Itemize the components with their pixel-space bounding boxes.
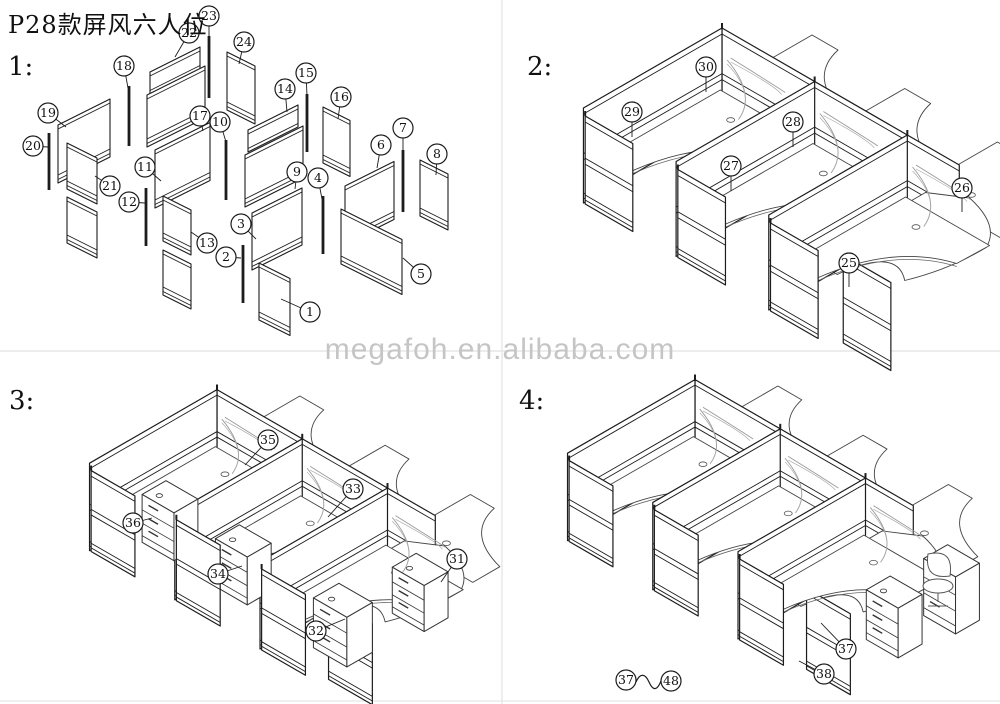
callout-16: 16	[331, 87, 351, 107]
section-3-label: 3:	[9, 386, 34, 416]
callout-number: 19	[40, 105, 56, 120]
callout-number: 32	[308, 623, 324, 638]
callout-number: 14	[277, 81, 293, 96]
callout-number: 1	[306, 304, 314, 319]
callout-35: 35	[258, 430, 278, 450]
callout-number: 13	[199, 235, 215, 250]
catalog-diagram-page: 1234567891011121314151617181920212223242…	[0, 0, 1000, 704]
callout-17: 17	[190, 106, 210, 126]
callout-number: 38	[816, 666, 832, 681]
callout-27: 27	[721, 156, 741, 176]
callout-28: 28	[783, 112, 803, 132]
callout-2: 2	[216, 247, 236, 267]
callout-number: 17	[192, 108, 208, 123]
chair-seat	[923, 579, 953, 593]
callout-3: 3	[231, 214, 251, 234]
callout-13: 13	[197, 233, 217, 253]
page-title: P28款屏风六人位	[8, 5, 208, 40]
callout-number: 25	[841, 255, 857, 270]
callout-31: 31	[447, 549, 467, 569]
callout-number: 30	[698, 59, 714, 74]
callout-number: 31	[449, 551, 465, 566]
callout-10: 10	[210, 112, 230, 132]
screen-panel	[67, 197, 97, 258]
section-3-figure: 313233343536	[90, 385, 500, 704]
callout-number: 16	[333, 89, 349, 104]
legend-number: 48	[663, 673, 679, 688]
callout-12: 12	[119, 192, 139, 212]
screen-panel	[163, 196, 191, 255]
callout-number: 6	[377, 137, 385, 152]
callout-1: 1	[300, 302, 320, 322]
callout-number: 24	[236, 34, 252, 49]
callout-25: 25	[839, 253, 859, 273]
callout-number: 27	[723, 158, 739, 173]
callout-20: 20	[23, 136, 43, 156]
section-1-label: 1:	[8, 52, 33, 82]
screen-panel	[163, 250, 191, 309]
callout-21: 21	[100, 176, 120, 196]
callout-number: 35	[260, 432, 276, 447]
callout-number: 34	[210, 566, 226, 581]
callout-number: 15	[298, 65, 314, 80]
part-range-legend: 3748	[616, 670, 681, 691]
callout-29: 29	[622, 102, 642, 122]
section-1-figure: 123456789101112131415161718192021222324	[23, 6, 448, 336]
callout-number: 12	[121, 194, 137, 209]
callout-number: 36	[125, 515, 141, 530]
callout-11: 11	[135, 157, 155, 177]
callout-32: 32	[306, 621, 326, 641]
callout-number: 3	[237, 216, 245, 231]
callout-14: 14	[275, 79, 295, 99]
callout-37: 37	[836, 639, 856, 659]
callout-number: 20	[25, 138, 41, 153]
callout-number: 33	[345, 481, 361, 496]
callout-26: 26	[952, 178, 972, 198]
callout-38: 38	[814, 664, 834, 684]
callout-8: 8	[427, 144, 447, 164]
section-2-label: 2:	[527, 52, 552, 82]
callout-number: 8	[433, 146, 441, 161]
callout-number: 11	[137, 159, 153, 174]
callout-24: 24	[234, 32, 254, 52]
callout-number: 21	[102, 178, 118, 193]
callout-15: 15	[296, 63, 316, 83]
callout-number: 2	[222, 249, 230, 264]
callout-36: 36	[123, 513, 143, 533]
callout-18: 18	[114, 56, 134, 76]
callout-7: 7	[393, 118, 413, 138]
callout-number: 4	[314, 170, 322, 185]
callout-30: 30	[696, 57, 716, 77]
callout-number: 37	[838, 641, 854, 656]
section-4-label: 4:	[519, 386, 544, 416]
callout-number: 9	[293, 164, 301, 179]
section-4-figure: 37483738	[568, 375, 980, 695]
callout-number: 10	[212, 114, 228, 129]
callout-6: 6	[371, 135, 391, 155]
callout-number: 26	[954, 180, 970, 195]
section-2-figure: 252627282930	[583, 23, 1000, 371]
callout-number: 28	[785, 114, 801, 129]
callout-19: 19	[38, 103, 58, 123]
watermark: megafoh.en.alibaba.com	[0, 333, 1000, 367]
callout-number: 18	[116, 58, 132, 73]
legend-number: 37	[618, 672, 634, 687]
callout-number: 7	[399, 120, 407, 135]
callout-5: 5	[411, 264, 431, 284]
callout-number: 29	[624, 104, 640, 119]
callout-number: 5	[417, 266, 425, 281]
callout-4: 4	[308, 168, 328, 188]
callout-34: 34	[208, 564, 228, 584]
callout-33: 33	[343, 479, 363, 499]
callout-9: 9	[287, 162, 307, 182]
